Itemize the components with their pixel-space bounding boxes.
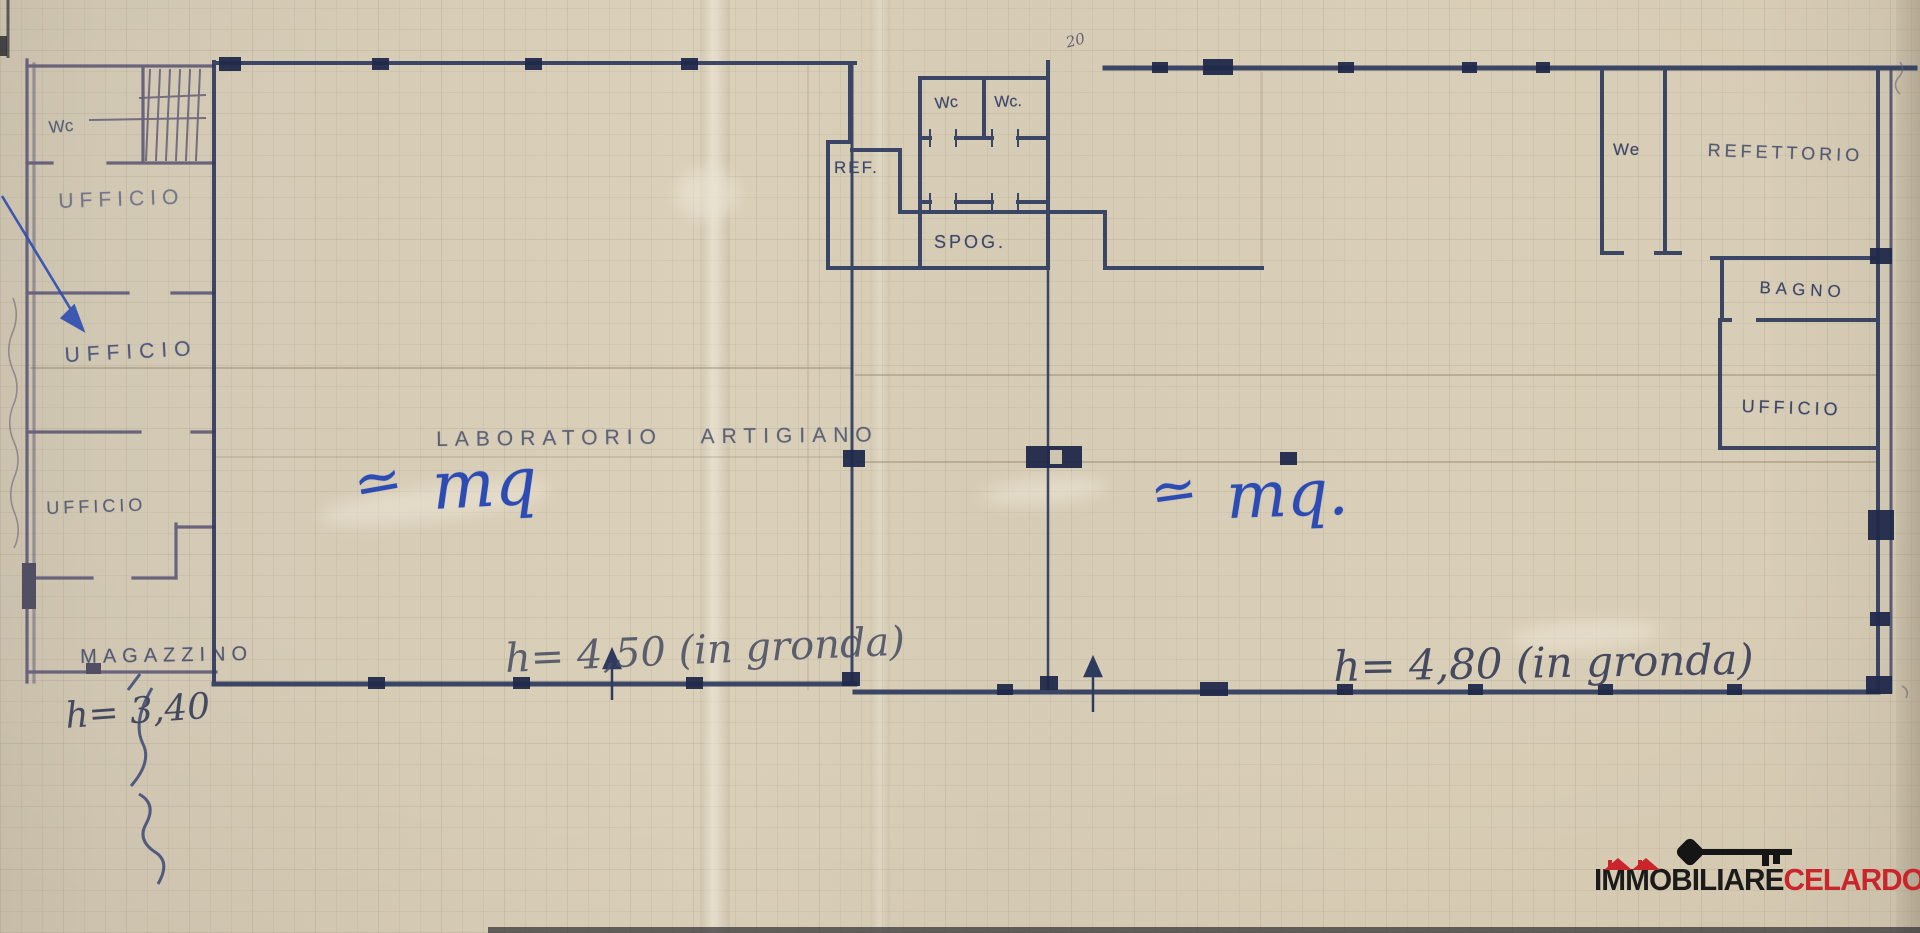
room-label-wc-center-1: Wc (934, 94, 959, 114)
stairs (90, 70, 205, 160)
room-label-ufficio-1: UFFICIO (58, 186, 185, 214)
room-label-ufficio-3: UFFICIO (46, 495, 147, 519)
room-label-ref: REF. (834, 158, 879, 178)
mq-note-right: mq. (1225, 456, 1350, 534)
brand-black-text: IMMOBILIARE (1594, 862, 1783, 897)
height-note-right-hall: h= 4,80 (in gronda) (1333, 635, 1754, 691)
agency-watermark: IMMOBILIARECELARDO® (1594, 834, 1906, 908)
brand-red-text: CELARDO (1783, 862, 1920, 897)
mq-note-left: mq (430, 443, 539, 525)
main-walls (214, 62, 1915, 692)
left-strip-walls (22, 60, 216, 682)
blue-arrow (2, 196, 83, 330)
pillars (219, 57, 1894, 696)
room-label-wc-center-2: Wc. (994, 93, 1022, 112)
room-label-we-right: We (1613, 140, 1640, 160)
room-label-wc-left: Wc (48, 116, 74, 138)
approx-symbol-right: ≃ (1146, 455, 1202, 526)
room-label-ufficio-right: UFFICIO (1741, 396, 1842, 420)
room-label-magazzino: MAGAZZINO (80, 643, 253, 669)
agency-name: IMMOBILIARECELARDO® (1594, 861, 1920, 898)
room-label-spog: SPOG. (934, 232, 1006, 253)
scanned-floorplan: Wc UFFICIO UFFICIO UFFICIO MAGAZZINO LAB… (0, 0, 1920, 933)
